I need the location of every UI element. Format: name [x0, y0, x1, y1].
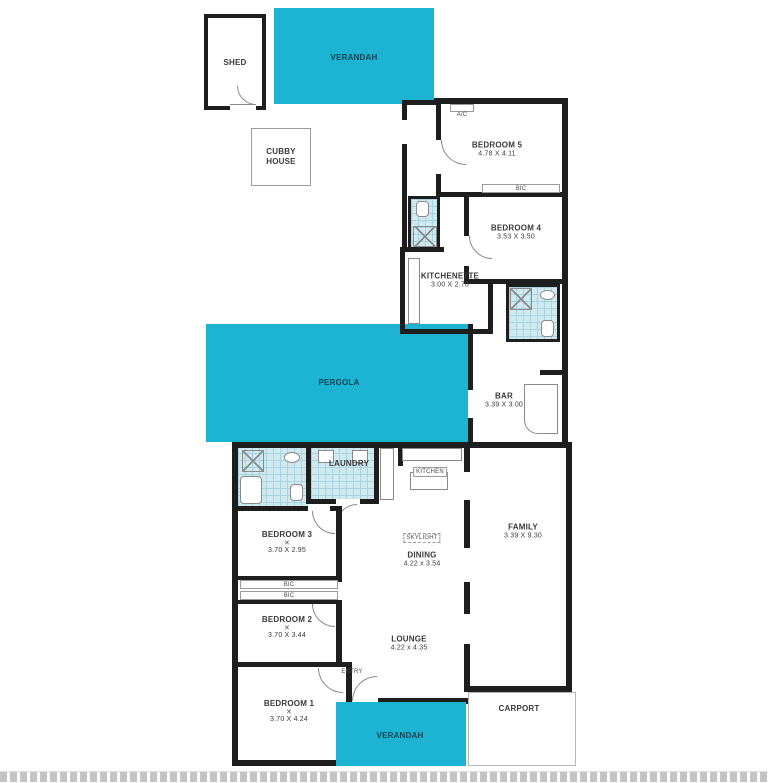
- bedroom3-label: BEDROOM 3✕3.70 X 2.95: [262, 530, 312, 556]
- door-opening: [464, 472, 470, 500]
- entry-door-arc: [352, 676, 377, 701]
- carport-label: CARPORT: [499, 704, 540, 714]
- bedroom1-door-arc: [318, 668, 343, 693]
- kitchenette-label: KITCHENETTE3.00 X 2.70: [421, 272, 479, 291]
- hall-cupboard: [380, 448, 394, 500]
- toilet-icon: [290, 484, 303, 501]
- bedroom5-label: BEDROOM 54.78 X 4.11: [472, 141, 522, 160]
- door-opening: [468, 390, 473, 418]
- bic-tag: BIC: [284, 582, 295, 588]
- wall: [232, 662, 352, 667]
- wall: [306, 442, 311, 504]
- bic-tag: BIC: [516, 186, 527, 192]
- wall: [468, 324, 473, 446]
- wall: [464, 279, 568, 284]
- ac-tag: A/C: [457, 112, 468, 118]
- bar-label: BAR3.39 X 3.00: [485, 392, 523, 411]
- wall: [400, 247, 444, 252]
- door-opening: [464, 236, 469, 266]
- shower-icon: [413, 226, 437, 247]
- shed-label: SHED: [223, 58, 246, 68]
- bedroom4-door-arc: [469, 236, 492, 259]
- shed-door-opening: [230, 104, 256, 113]
- pergola-label: PERGOLA: [319, 378, 360, 388]
- basin-icon: [284, 452, 300, 463]
- floor-plan: SHED VERANDAH CUBBY HOUSE PERGOLA BIC A/…: [0, 0, 768, 783]
- bic-tag: BIC: [284, 593, 295, 599]
- ac-unit: [450, 104, 474, 112]
- door-opening: [464, 614, 470, 644]
- kitchen-bench: [402, 448, 462, 461]
- bedroom2-label: BEDROOM 2✕3.70 X 3.44: [262, 615, 312, 641]
- wall: [336, 600, 342, 666]
- verandah-bottom-label: VERANDAH: [377, 731, 424, 741]
- bath-icon: [240, 476, 262, 504]
- wall: [374, 442, 379, 504]
- wall: [336, 506, 342, 582]
- laundry-label: LAUNDRY: [329, 459, 369, 469]
- wall: [562, 98, 568, 446]
- shower-icon: [242, 450, 264, 472]
- wall: [540, 370, 568, 375]
- bar-counter: [524, 384, 558, 434]
- wall: [232, 442, 238, 766]
- bedroom2-door-arc: [312, 604, 335, 627]
- bedroom3-door-arc: [312, 511, 335, 534]
- skylight-tag: SKYLIGHT: [403, 533, 440, 543]
- kitchen-tag: KITCHEN: [413, 467, 447, 477]
- bedroom1-label: BEDROOM 1✕3.70 X 4.24: [264, 699, 314, 725]
- basin-icon: [540, 290, 555, 300]
- wall: [404, 100, 438, 105]
- family-label: FAMILY3.39 X 9.30: [504, 523, 542, 542]
- bedroom5-door-arc: [441, 140, 466, 165]
- shower-icon: [510, 288, 532, 310]
- wall: [232, 760, 352, 766]
- verandah-top-label: VERANDAH: [331, 53, 378, 63]
- toilet-icon: [416, 201, 429, 217]
- lounge-label: LOUNGE4.22 x 4.35: [391, 635, 428, 654]
- wall: [400, 329, 493, 334]
- cubby-house-label: CUBBY HOUSE: [266, 147, 295, 167]
- wall: [488, 284, 493, 334]
- door-opening: [464, 548, 470, 582]
- wall: [566, 442, 572, 692]
- toilet-icon: [541, 320, 554, 337]
- wall: [400, 247, 405, 334]
- door-opening: [402, 120, 407, 144]
- kitchenette-bench: [408, 258, 420, 324]
- dining-label: DINING4.22 x 3.54: [404, 551, 441, 570]
- door-opening: [436, 140, 441, 174]
- entry-tag: ENTRY: [341, 669, 362, 675]
- bedroom4-label: BEDROOM 43.53 X 3.50: [491, 224, 541, 243]
- boundary-hatch: [0, 771, 768, 782]
